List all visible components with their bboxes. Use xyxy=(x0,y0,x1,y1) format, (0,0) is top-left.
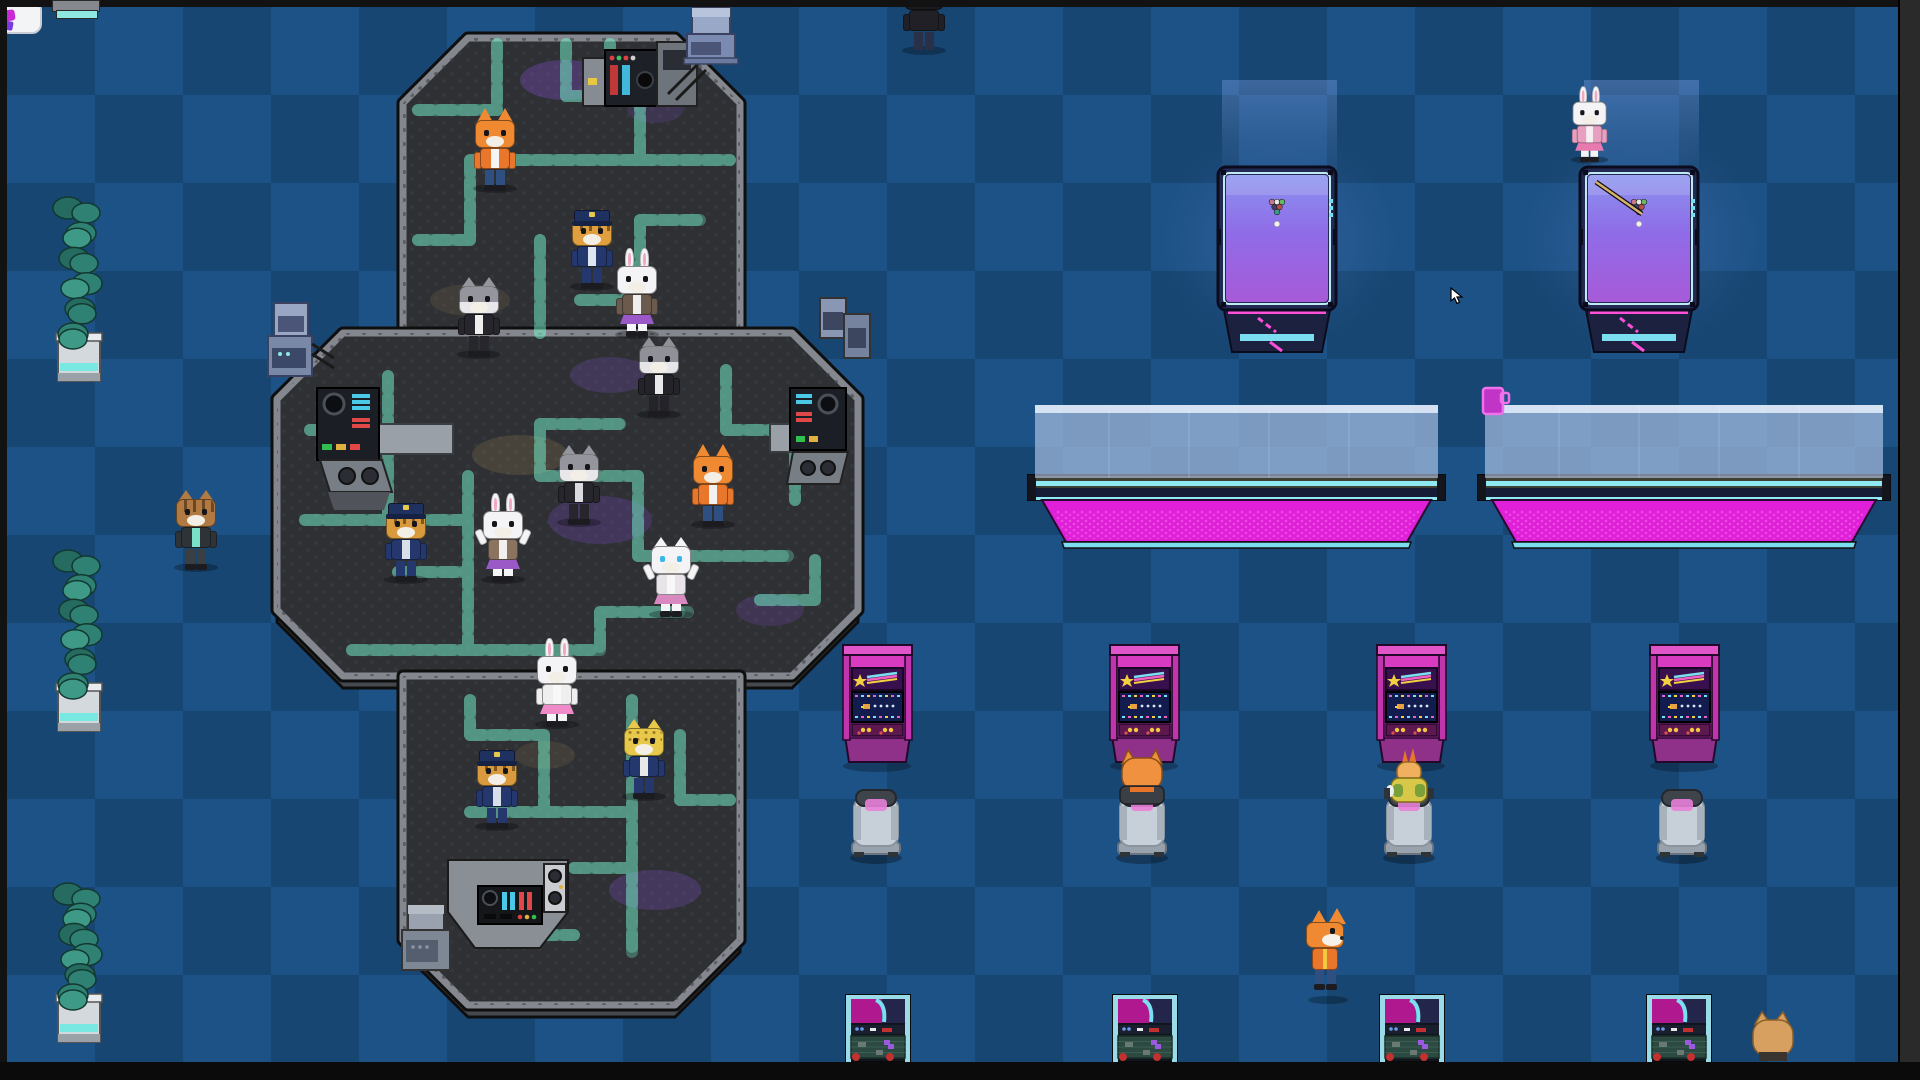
bottom-arcade-machine[interactable] xyxy=(1380,995,1444,1062)
arcade-machine[interactable] xyxy=(1377,645,1446,772)
potted-plant xyxy=(53,197,102,381)
top-left-object-teal xyxy=(56,10,98,19)
top-edge-bar xyxy=(0,0,1920,7)
arcade-machine[interactable] xyxy=(1110,645,1179,772)
long-table[interactable] xyxy=(1478,405,1890,548)
potted-plant xyxy=(53,550,102,731)
left-edge-bar xyxy=(0,0,7,1080)
pool-table[interactable] xyxy=(1579,167,1699,352)
small-machine-right[interactable] xyxy=(820,298,870,358)
potted-plant xyxy=(53,883,102,1042)
scene-canvas xyxy=(0,0,1920,1080)
bottom-edge-bar xyxy=(0,1062,1920,1080)
bottom-arcade-machines[interactable] xyxy=(846,995,1711,1062)
chairs[interactable] xyxy=(850,790,1708,864)
glow-patch xyxy=(570,357,650,393)
pool-tables[interactable] xyxy=(1217,167,1699,352)
plants xyxy=(53,197,102,1042)
tan-cat-bottom[interactable] xyxy=(1753,1012,1793,1061)
glow-patch xyxy=(609,870,701,910)
bottom-arcade-machine[interactable] xyxy=(1113,995,1177,1062)
water-cooler-top[interactable] xyxy=(684,8,738,64)
bottom-arcade-machine[interactable] xyxy=(846,995,910,1062)
long-tables[interactable] xyxy=(1028,405,1890,548)
bottom-console[interactable] xyxy=(448,860,568,948)
arcade-machine[interactable] xyxy=(843,645,912,772)
game-viewport xyxy=(0,0,1920,1080)
sitting-cat-rear[interactable] xyxy=(1120,750,1164,804)
chair[interactable] xyxy=(850,790,902,864)
glow-patch xyxy=(430,284,510,316)
bottom-arcade-machine[interactable] xyxy=(1647,995,1711,1062)
right-edge-bar xyxy=(1898,0,1920,1080)
arcade-machines[interactable] xyxy=(843,645,1719,772)
glow-patch xyxy=(472,435,568,475)
long-table[interactable] xyxy=(1028,405,1445,548)
gray-box-bottom[interactable] xyxy=(402,905,450,970)
arcade-machine[interactable] xyxy=(1650,645,1719,772)
pool-table[interactable] xyxy=(1217,167,1337,352)
chair[interactable] xyxy=(1656,790,1708,864)
mouse-cursor xyxy=(1450,287,1468,305)
